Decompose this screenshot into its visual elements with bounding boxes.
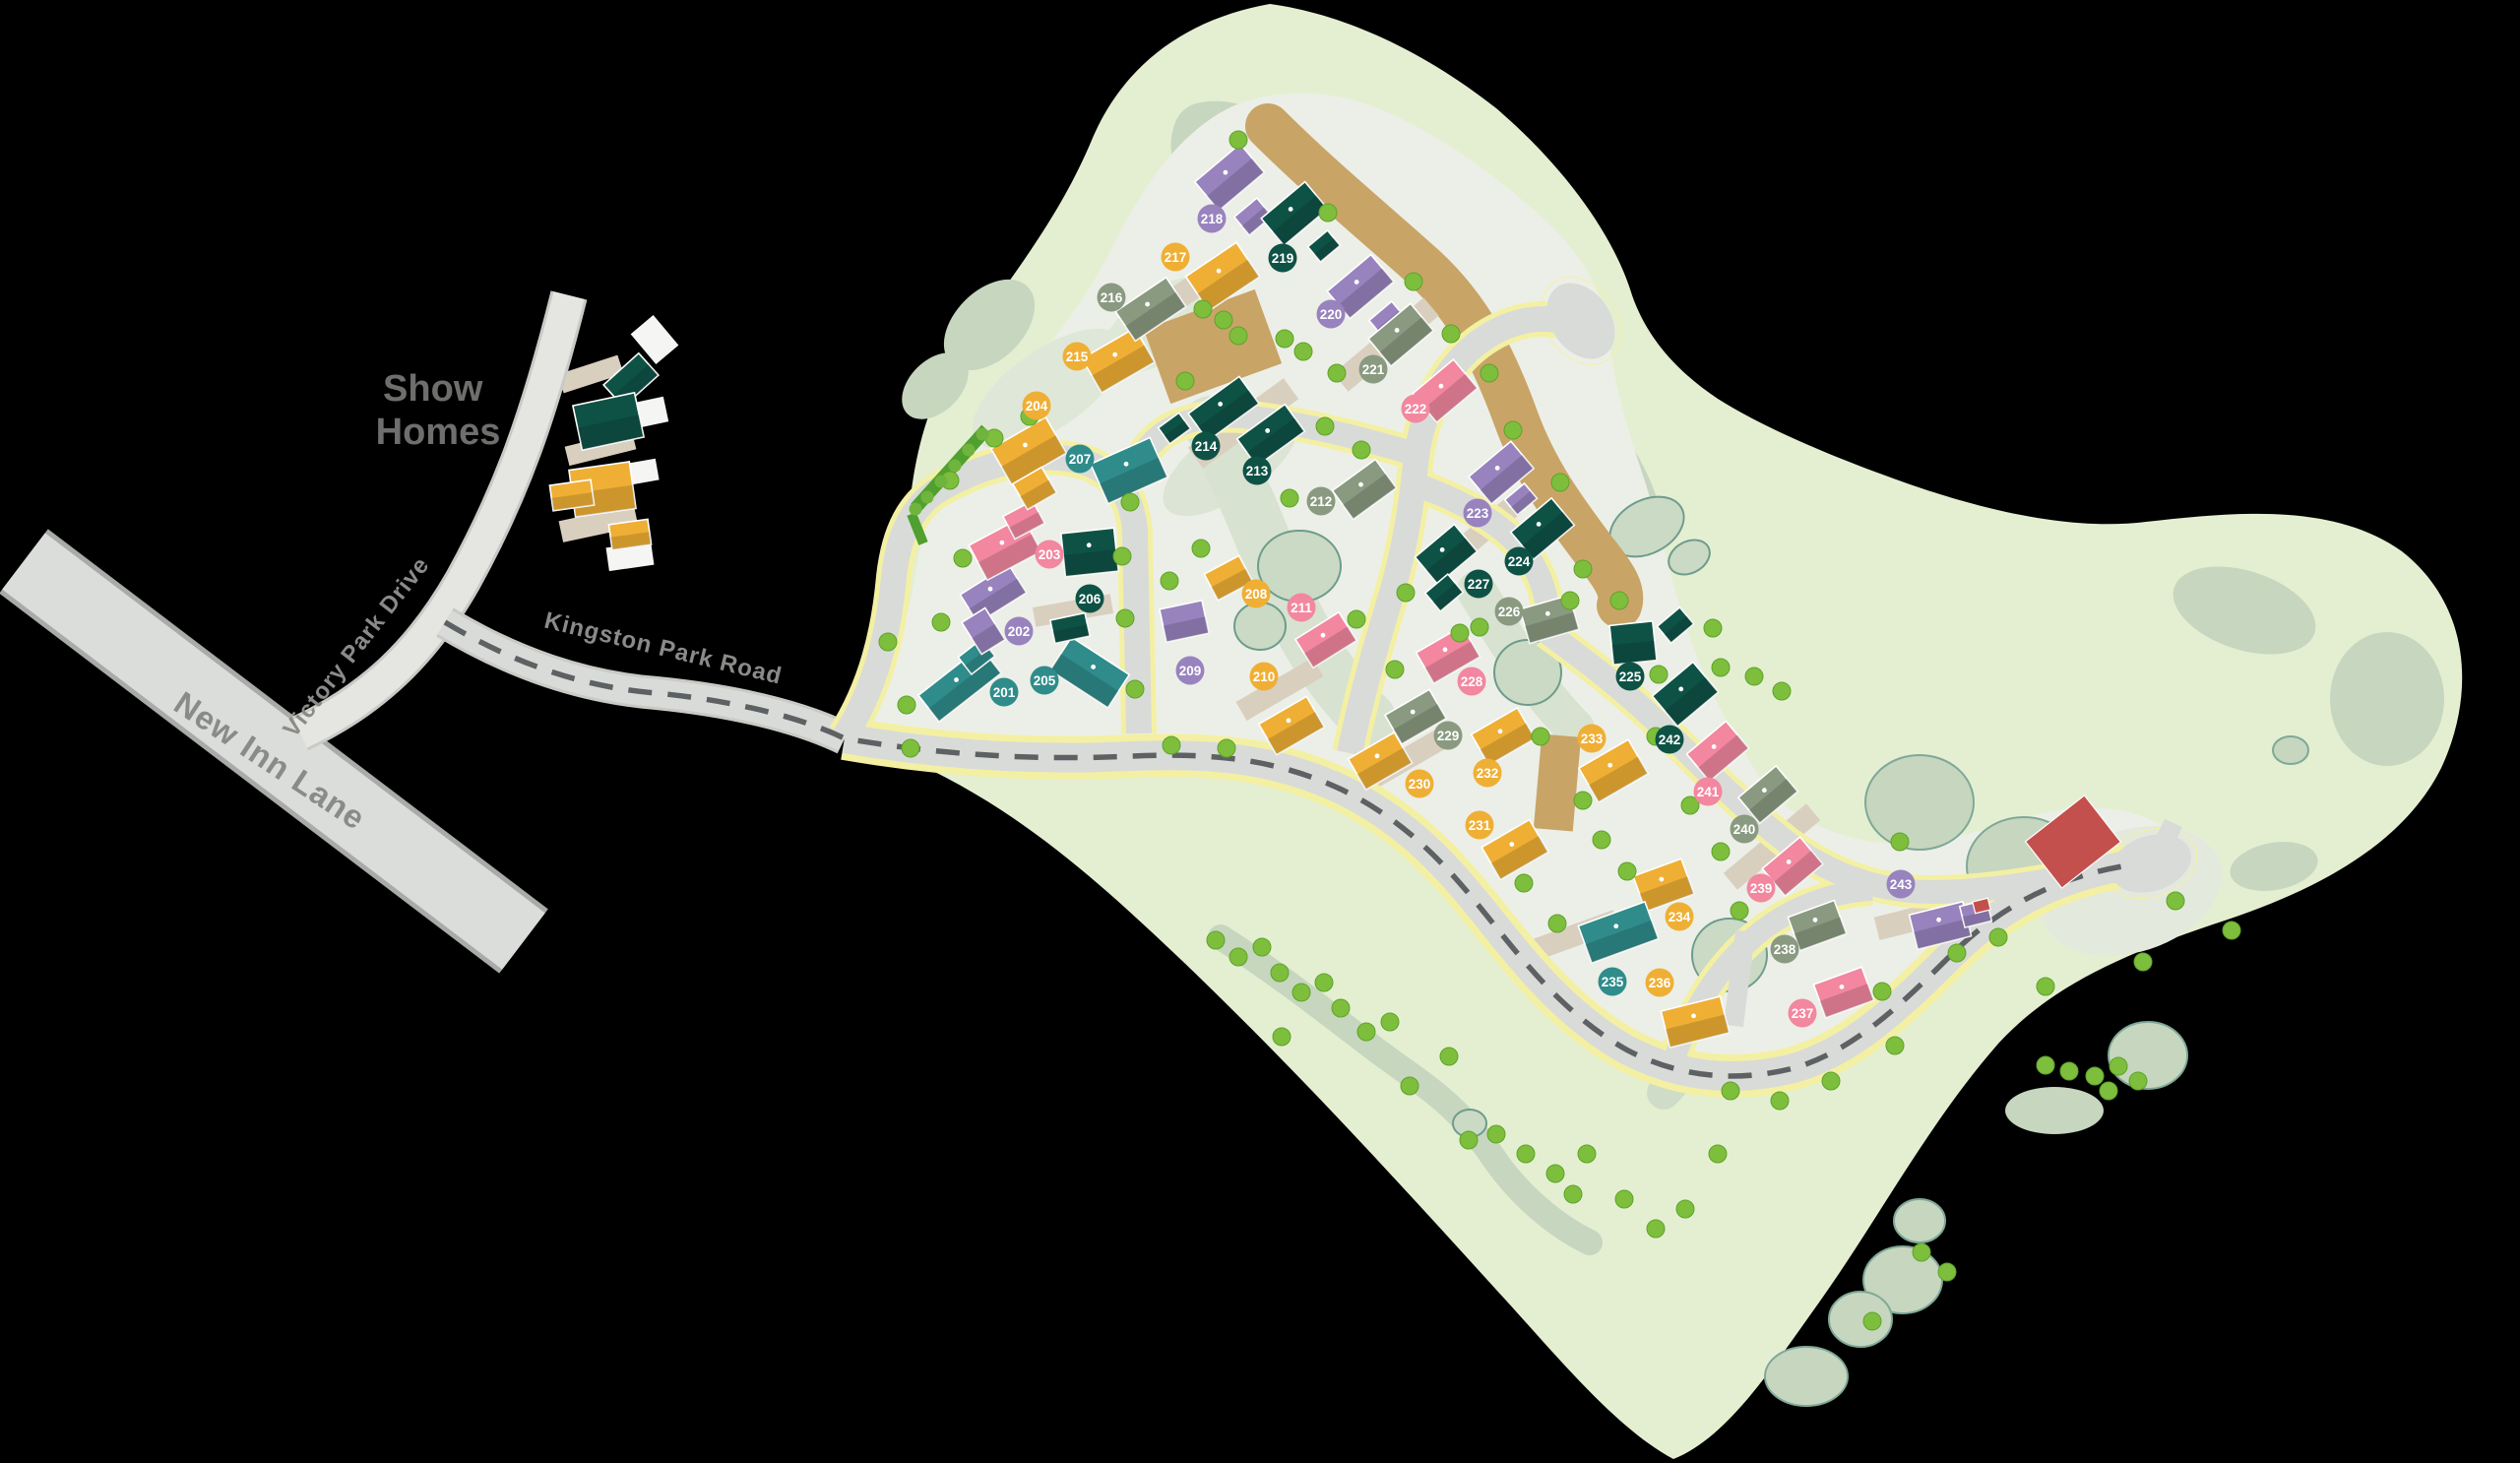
tree-icon bbox=[1113, 547, 1131, 565]
plot-number: 220 bbox=[1320, 307, 1343, 322]
pond bbox=[1234, 603, 1286, 650]
plot-marker-232[interactable]: 232 bbox=[1474, 759, 1502, 788]
plot-number: 239 bbox=[1750, 881, 1773, 896]
tree-icon bbox=[1451, 624, 1469, 642]
tree-icon bbox=[2037, 978, 2054, 995]
plot-marker-211[interactable]: 211 bbox=[1288, 594, 1316, 622]
hedge-dot bbox=[935, 476, 948, 488]
plot-number: 240 bbox=[1733, 822, 1756, 837]
plot-number: 232 bbox=[1477, 766, 1499, 781]
tree-icon bbox=[1647, 1220, 1665, 1238]
tree-icon bbox=[1574, 560, 1592, 578]
plot-number: 216 bbox=[1101, 290, 1123, 305]
tree-icon bbox=[1989, 928, 2007, 946]
plot-number: 221 bbox=[1362, 362, 1385, 377]
tree-icon bbox=[1722, 1082, 1739, 1100]
plot-number: 223 bbox=[1467, 506, 1489, 521]
plot-marker-242[interactable]: 242 bbox=[1656, 726, 1684, 754]
tree-icon bbox=[2086, 1067, 2104, 1085]
plot-marker-212[interactable]: 212 bbox=[1307, 487, 1336, 516]
tree-icon bbox=[1357, 1023, 1375, 1041]
tree-icon bbox=[1207, 931, 1225, 949]
woodland bbox=[2109, 1022, 2187, 1089]
plot-marker-218[interactable]: 218 bbox=[1198, 205, 1227, 233]
tree-icon bbox=[1276, 330, 1293, 348]
plot-number: 209 bbox=[1179, 664, 1202, 678]
plot-number: 224 bbox=[1508, 554, 1531, 569]
plot-number: 213 bbox=[1246, 464, 1269, 478]
plot-marker-227[interactable]: 227 bbox=[1465, 570, 1493, 599]
tree-icon bbox=[1192, 540, 1210, 557]
plot-marker-238[interactable]: 238 bbox=[1771, 935, 1799, 964]
plot-number: 205 bbox=[1034, 673, 1056, 688]
plot-number: 218 bbox=[1201, 212, 1224, 226]
tree-icon bbox=[1316, 417, 1334, 435]
tree-icon bbox=[1938, 1263, 1956, 1281]
tree-icon bbox=[1615, 1190, 1633, 1208]
plot-marker-221[interactable]: 221 bbox=[1359, 355, 1388, 384]
tree-icon bbox=[1731, 902, 1748, 920]
plot-number: 226 bbox=[1498, 604, 1521, 619]
plot-number: 231 bbox=[1469, 818, 1491, 833]
plot-marker-239[interactable]: 239 bbox=[1747, 874, 1776, 903]
tree-icon bbox=[1348, 610, 1365, 628]
plot-marker-206[interactable]: 206 bbox=[1076, 585, 1104, 613]
plot-marker-213[interactable]: 213 bbox=[1243, 457, 1272, 485]
plot-marker-236[interactable]: 236 bbox=[1646, 969, 1674, 997]
show-home-building[interactable] bbox=[549, 479, 594, 511]
plot-number: 228 bbox=[1461, 674, 1483, 689]
tree-icon bbox=[1886, 1037, 1904, 1054]
tree-icon bbox=[1176, 372, 1194, 390]
tree-icon bbox=[1215, 311, 1232, 329]
site-plan-map: 2012022032042052062072082092102112122132… bbox=[0, 0, 2520, 1463]
plot-marker-207[interactable]: 207 bbox=[1066, 445, 1095, 474]
tree-icon bbox=[1515, 874, 1533, 892]
tree-icon bbox=[954, 549, 972, 567]
plot-number: 202 bbox=[1008, 624, 1031, 639]
plot-number: 222 bbox=[1405, 402, 1427, 416]
tree-icon bbox=[1116, 609, 1134, 627]
tree-icon bbox=[1253, 938, 1271, 956]
tree-icon bbox=[1504, 421, 1522, 439]
tree-icon bbox=[1704, 619, 1722, 637]
plot-number: 204 bbox=[1026, 399, 1048, 413]
tree-icon bbox=[2110, 1057, 2127, 1075]
plot-number: 217 bbox=[1165, 250, 1187, 265]
tree-icon bbox=[1281, 489, 1298, 507]
tree-icon bbox=[1471, 618, 1488, 636]
show-home-building[interactable] bbox=[608, 519, 651, 549]
tree-icon bbox=[1442, 325, 1460, 343]
plot-marker-201[interactable]: 201 bbox=[990, 678, 1019, 707]
hedge-dot bbox=[976, 428, 989, 441]
plot-number: 242 bbox=[1659, 732, 1681, 747]
plot-marker-220[interactable]: 220 bbox=[1317, 300, 1346, 329]
plot-marker-231[interactable]: 231 bbox=[1466, 811, 1494, 840]
plot-marker-205[interactable]: 205 bbox=[1031, 667, 1059, 695]
plot-number: 235 bbox=[1602, 975, 1624, 989]
sage-blob bbox=[2330, 632, 2444, 766]
tree-icon bbox=[1397, 584, 1415, 602]
plot-marker-214[interactable]: 214 bbox=[1192, 432, 1221, 461]
site-plan-page: 2012022032042052062072082092102112122132… bbox=[0, 0, 2520, 1463]
tree-icon bbox=[932, 613, 950, 631]
plot-number: 238 bbox=[1774, 942, 1796, 957]
tree-icon bbox=[1386, 661, 1404, 678]
tree-icon bbox=[1218, 739, 1235, 757]
tree-icon bbox=[1440, 1048, 1458, 1065]
house bbox=[1061, 528, 1118, 576]
woodland bbox=[1894, 1199, 1945, 1242]
plot-marker-215[interactable]: 215 bbox=[1063, 343, 1092, 371]
plot-number: 214 bbox=[1195, 439, 1218, 454]
house bbox=[1609, 621, 1657, 665]
tree-icon bbox=[2060, 1062, 2078, 1080]
woodland bbox=[1829, 1292, 1892, 1347]
plot-marker-222[interactable]: 222 bbox=[1402, 395, 1430, 423]
plot-marker-203[interactable]: 203 bbox=[1036, 541, 1064, 569]
tree-icon bbox=[1273, 1028, 1291, 1046]
plot-number: 237 bbox=[1792, 1006, 1814, 1021]
plot-marker-240[interactable]: 240 bbox=[1731, 815, 1759, 844]
plot-number: 227 bbox=[1468, 577, 1490, 592]
plot-marker-209[interactable]: 209 bbox=[1176, 657, 1205, 685]
tree-icon bbox=[1381, 1013, 1399, 1031]
tree-icon bbox=[1517, 1145, 1535, 1163]
tree-icon bbox=[1551, 474, 1569, 491]
plot-marker-225[interactable]: 225 bbox=[1616, 663, 1645, 691]
plot-number: 211 bbox=[1291, 601, 1312, 615]
tree-icon bbox=[879, 633, 897, 651]
tree-icon bbox=[1564, 1185, 1582, 1203]
tree-icon bbox=[1163, 736, 1180, 754]
tree-icon bbox=[1618, 862, 1636, 880]
plot-number: 201 bbox=[993, 685, 1016, 700]
plot-marker-217[interactable]: 217 bbox=[1162, 243, 1190, 272]
plot-marker-204[interactable]: 204 bbox=[1023, 392, 1051, 420]
plot-marker-223[interactable]: 223 bbox=[1464, 499, 1492, 528]
tan-patch bbox=[1534, 733, 1581, 831]
tree-icon bbox=[1353, 441, 1370, 459]
tree-icon bbox=[1319, 204, 1337, 222]
tree-icon bbox=[1745, 668, 1763, 685]
tree-icon bbox=[1773, 682, 1791, 700]
plot-number: 210 bbox=[1253, 669, 1276, 684]
tree-icon bbox=[1891, 833, 1909, 851]
plot-number: 206 bbox=[1079, 592, 1102, 606]
plot-marker-241[interactable]: 241 bbox=[1694, 778, 1723, 806]
tree-icon bbox=[2167, 892, 2184, 910]
tree-icon bbox=[1126, 680, 1144, 698]
tree-icon bbox=[1532, 728, 1549, 745]
sage-blob bbox=[2005, 1087, 2104, 1134]
tree-icon bbox=[1913, 1243, 1930, 1261]
tree-icon bbox=[1405, 273, 1422, 290]
plot-number: 236 bbox=[1649, 976, 1671, 990]
tree-icon bbox=[1948, 944, 1966, 962]
tree-icon bbox=[1121, 493, 1139, 511]
hedge-dot bbox=[921, 491, 934, 504]
tree-icon bbox=[1460, 1131, 1478, 1149]
tree-icon bbox=[1610, 592, 1628, 609]
woodland bbox=[1765, 1347, 1848, 1406]
plot-number: 241 bbox=[1697, 785, 1720, 799]
tree-icon bbox=[1546, 1165, 1564, 1182]
plot-marker-235[interactable]: 235 bbox=[1599, 968, 1627, 996]
plot-marker-229[interactable]: 229 bbox=[1434, 722, 1463, 750]
plot-number: 233 bbox=[1581, 731, 1604, 746]
tree-icon bbox=[1271, 964, 1289, 982]
plot-marker-233[interactable]: 233 bbox=[1578, 725, 1606, 753]
tree-icon bbox=[1548, 915, 1566, 932]
plot-marker-210[interactable]: 210 bbox=[1250, 663, 1279, 691]
tree-icon bbox=[1229, 327, 1247, 345]
plot-number: 207 bbox=[1069, 452, 1092, 467]
tree-icon bbox=[1709, 1145, 1727, 1163]
plot-marker-208[interactable]: 208 bbox=[1242, 580, 1271, 608]
tree-icon bbox=[1332, 999, 1350, 1017]
tree-icon bbox=[2037, 1056, 2054, 1074]
plot-marker-224[interactable]: 224 bbox=[1505, 547, 1534, 576]
tree-icon bbox=[898, 696, 915, 714]
tree-icon bbox=[1194, 300, 1212, 318]
plot-number: 208 bbox=[1245, 587, 1268, 602]
tree-icon bbox=[2100, 1082, 2117, 1100]
plot-number: 215 bbox=[1066, 350, 1089, 364]
plot-number: 212 bbox=[1310, 494, 1333, 509]
pond bbox=[1258, 531, 1341, 602]
tree-icon bbox=[1161, 572, 1178, 590]
tree-icon bbox=[1676, 1200, 1694, 1218]
plot-marker-216[interactable]: 216 bbox=[1098, 284, 1126, 312]
tree-icon bbox=[2223, 922, 2240, 939]
plot-marker-228[interactable]: 228 bbox=[1458, 668, 1486, 696]
tree-icon bbox=[1487, 1125, 1505, 1143]
tree-icon bbox=[1712, 659, 1730, 676]
tree-icon bbox=[1574, 792, 1592, 809]
woodland bbox=[1865, 755, 1974, 850]
plot-marker-237[interactable]: 237 bbox=[1789, 999, 1817, 1028]
plot-number: 229 bbox=[1437, 729, 1460, 743]
plot-marker-230[interactable]: 230 bbox=[1406, 770, 1434, 798]
tree-icon bbox=[1650, 666, 1668, 683]
hedge-dot bbox=[963, 444, 976, 457]
plot-marker-234[interactable]: 234 bbox=[1666, 903, 1694, 931]
hedge-dot bbox=[949, 460, 962, 473]
plot-number: 203 bbox=[1039, 547, 1061, 562]
plot-number: 225 bbox=[1619, 669, 1642, 684]
plot-marker-202[interactable]: 202 bbox=[1005, 617, 1034, 646]
tree-icon bbox=[1593, 831, 1610, 849]
tree-icon bbox=[1328, 364, 1346, 382]
tree-icon bbox=[1771, 1092, 1789, 1110]
tree-icon bbox=[1229, 948, 1247, 966]
tree-icon bbox=[1294, 343, 1312, 360]
tree-icon bbox=[1401, 1077, 1418, 1095]
tree-icon bbox=[1873, 983, 1891, 1000]
tree-icon bbox=[1712, 843, 1730, 860]
tree-icon bbox=[2129, 1072, 2147, 1090]
tree-icon bbox=[1292, 984, 1310, 1001]
tree-icon bbox=[902, 739, 919, 757]
plot-number: 219 bbox=[1272, 251, 1294, 266]
plot-number: 243 bbox=[1890, 877, 1913, 892]
tree-icon bbox=[1561, 592, 1579, 609]
tree-icon bbox=[1863, 1312, 1881, 1330]
tree-icon bbox=[2134, 953, 2152, 971]
tree-icon bbox=[1578, 1145, 1596, 1163]
tree-icon bbox=[1822, 1072, 1840, 1090]
tree-icon bbox=[1315, 974, 1333, 991]
tree-icon bbox=[1229, 131, 1247, 149]
plot-number: 234 bbox=[1669, 910, 1691, 924]
plot-marker-243[interactable]: 243 bbox=[1887, 870, 1916, 899]
hedge-dot bbox=[910, 503, 922, 516]
tree-icon bbox=[1480, 364, 1498, 382]
plot-marker-226[interactable]: 226 bbox=[1495, 598, 1524, 626]
woodland bbox=[2273, 736, 2308, 764]
plot-number: 230 bbox=[1409, 777, 1431, 792]
plot-marker-219[interactable]: 219 bbox=[1269, 244, 1297, 273]
